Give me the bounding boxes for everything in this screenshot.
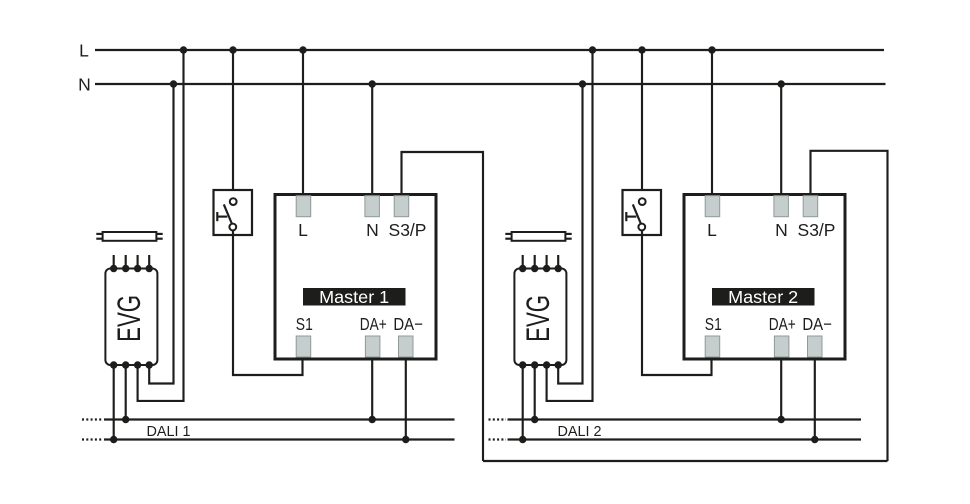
svg-text:N: N	[366, 220, 379, 240]
svg-text:S1: S1	[296, 314, 313, 334]
svg-text:EVG: EVG	[520, 295, 556, 342]
svg-text:L: L	[79, 41, 89, 61]
svg-text:DA−: DA−	[393, 314, 423, 334]
svg-text:N: N	[78, 75, 91, 95]
svg-text:S3/P: S3/P	[389, 220, 427, 240]
svg-text:DALI 2: DALI 2	[558, 423, 602, 440]
svg-text:N: N	[775, 220, 788, 240]
svg-text:DA+: DA+	[769, 314, 796, 334]
svg-text:DA−: DA−	[802, 314, 832, 334]
svg-text:Master 2: Master 2	[728, 287, 798, 307]
svg-text:L: L	[298, 220, 308, 240]
svg-text:DALI 1: DALI 1	[147, 423, 191, 440]
svg-text:EVG: EVG	[111, 295, 147, 342]
svg-text:S3/P: S3/P	[798, 220, 836, 240]
svg-text:Master 1: Master 1	[319, 287, 389, 307]
svg-text:S1: S1	[705, 314, 722, 334]
svg-text:DA+: DA+	[360, 314, 387, 334]
svg-text:L: L	[707, 220, 717, 240]
